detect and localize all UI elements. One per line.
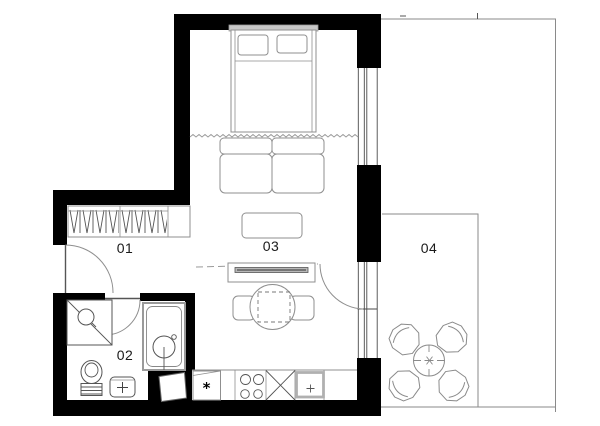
double-bed [229, 25, 318, 132]
room-label-02: 02 [117, 347, 134, 363]
terrace-door-arc [320, 264, 363, 309]
curtain-zigzag [190, 135, 358, 138]
dining-table [250, 285, 295, 330]
pillow-left [238, 35, 268, 55]
window-bedroom [358, 68, 377, 165]
kitchen-sink [297, 373, 324, 398]
dining-set [233, 285, 314, 330]
floor-plan: * 01 02 03 04 [0, 0, 600, 426]
freezer-star-symbol: * [203, 379, 211, 397]
floor-plan-svg: * 01 02 03 04 [0, 0, 600, 426]
wardrobe [68, 206, 190, 237]
washing-machine [67, 300, 112, 345]
fridge [159, 373, 187, 402]
entry-door [66, 245, 114, 293]
kitchen-counter: * [192, 370, 357, 400]
room-label-03: 03 [263, 238, 280, 254]
coffee-table [242, 213, 302, 238]
room-label-01: 01 [117, 240, 134, 256]
pillow-right [277, 35, 307, 53]
sofa [220, 138, 324, 193]
room-label-04: 04 [421, 240, 438, 256]
washbasin [110, 377, 135, 397]
freezer-unit: * [193, 371, 221, 400]
terrace-dining-set [383, 317, 474, 407]
shower-tub [143, 303, 185, 370]
toilet [81, 361, 102, 396]
sink-drainer-x [266, 371, 295, 401]
dimension-ticks [400, 13, 478, 19]
stove [241, 375, 264, 399]
terrace-glass-door [358, 262, 378, 358]
tv-sideboard [228, 263, 315, 282]
